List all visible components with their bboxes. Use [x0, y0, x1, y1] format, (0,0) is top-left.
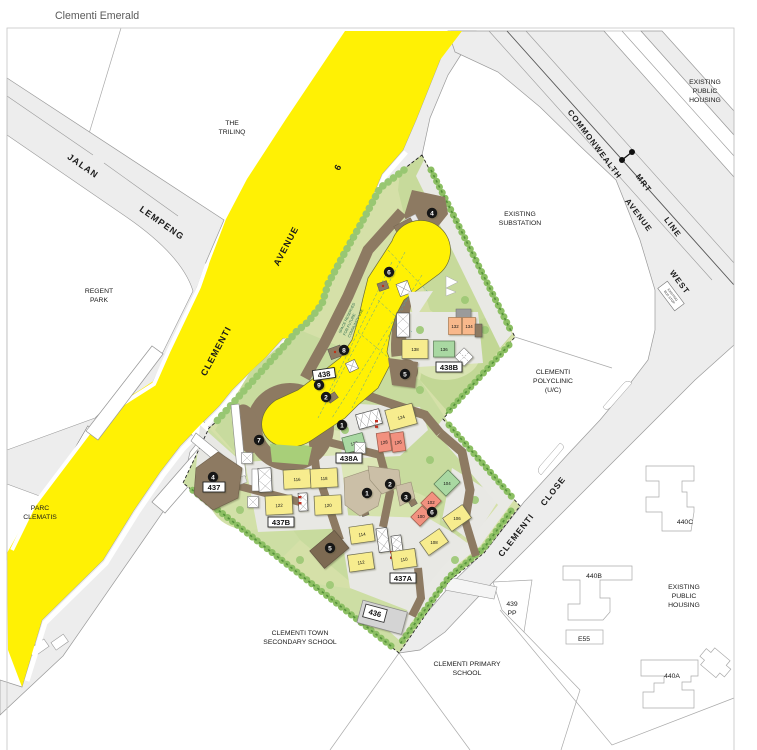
- svg-text:5: 5: [403, 371, 407, 378]
- svg-text:SUBSTATION: SUBSTATION: [499, 220, 542, 227]
- svg-text:118: 118: [320, 476, 328, 481]
- svg-text:8: 8: [342, 347, 346, 354]
- svg-text:136: 136: [440, 347, 448, 352]
- svg-text:TRILINQ: TRILINQ: [219, 129, 246, 136]
- svg-text:100: 100: [417, 514, 425, 519]
- svg-text:PP: PP: [507, 610, 517, 617]
- svg-text:E55: E55: [578, 636, 590, 643]
- svg-text:437B: 437B: [272, 518, 291, 527]
- svg-text:438A: 438A: [340, 454, 359, 463]
- svg-text:1: 1: [365, 490, 369, 497]
- svg-text:SECONDARY SCHOOL: SECONDARY SCHOOL: [263, 639, 337, 646]
- svg-text:2: 2: [388, 481, 392, 488]
- svg-text:438: 438: [317, 369, 331, 380]
- svg-text:1: 1: [340, 422, 344, 429]
- svg-text:HOUSING: HOUSING: [689, 97, 721, 104]
- svg-text:439: 439: [506, 601, 518, 608]
- svg-text:437: 437: [208, 483, 221, 492]
- svg-text:5: 5: [328, 545, 332, 552]
- svg-text:EXISTING: EXISTING: [668, 584, 700, 591]
- svg-text:HOUSING: HOUSING: [668, 602, 700, 609]
- svg-text:4: 4: [430, 210, 434, 217]
- svg-text:114: 114: [358, 531, 366, 537]
- svg-text:PARC: PARC: [31, 505, 49, 512]
- svg-text:112: 112: [357, 559, 365, 565]
- svg-text:POLYCLINIC: POLYCLINIC: [533, 378, 573, 385]
- svg-text:7: 7: [257, 437, 261, 444]
- svg-text:102: 102: [427, 500, 435, 505]
- svg-text:EXISTING: EXISTING: [689, 79, 721, 86]
- svg-text:110: 110: [400, 556, 408, 562]
- svg-text:438B: 438B: [440, 363, 459, 372]
- svg-text:SCHOOL: SCHOOL: [453, 670, 482, 677]
- svg-text:3: 3: [404, 494, 408, 501]
- svg-text:Clementi Emerald: Clementi Emerald: [55, 10, 139, 22]
- svg-text:CLEMENTI PRIMARY: CLEMENTI PRIMARY: [433, 661, 501, 668]
- svg-text:6: 6: [387, 269, 391, 276]
- svg-text:440B: 440B: [586, 573, 602, 580]
- svg-text:104: 104: [443, 481, 451, 486]
- svg-text:EXISTING: EXISTING: [504, 211, 536, 218]
- svg-text:PUBLIC: PUBLIC: [693, 88, 718, 95]
- svg-text:138: 138: [411, 347, 419, 352]
- svg-text:CLEMENTI TOWN: CLEMENTI TOWN: [272, 630, 329, 637]
- svg-text:4: 4: [211, 474, 215, 481]
- svg-text:132: 132: [451, 324, 459, 329]
- svg-text:116: 116: [293, 477, 301, 482]
- svg-text:134: 134: [465, 324, 473, 329]
- svg-text:2: 2: [324, 394, 328, 401]
- svg-text:(U/C): (U/C): [545, 387, 561, 394]
- svg-text:440C: 440C: [677, 519, 693, 526]
- svg-text:120: 120: [324, 503, 332, 508]
- svg-text:PARK: PARK: [90, 297, 108, 304]
- svg-text:437A: 437A: [394, 574, 413, 583]
- svg-text:9: 9: [317, 382, 321, 389]
- svg-text:REGENT: REGENT: [85, 288, 113, 295]
- svg-text:6: 6: [430, 509, 434, 516]
- svg-text:THE: THE: [225, 120, 239, 127]
- svg-text:108: 108: [430, 540, 438, 545]
- svg-text:PUBLIC: PUBLIC: [672, 593, 697, 600]
- svg-text:CLEMATIS: CLEMATIS: [23, 514, 57, 521]
- svg-text:440A: 440A: [664, 673, 680, 680]
- svg-text:CLEMENTI: CLEMENTI: [536, 369, 570, 376]
- svg-text:122: 122: [275, 503, 283, 508]
- svg-text:106: 106: [453, 516, 461, 521]
